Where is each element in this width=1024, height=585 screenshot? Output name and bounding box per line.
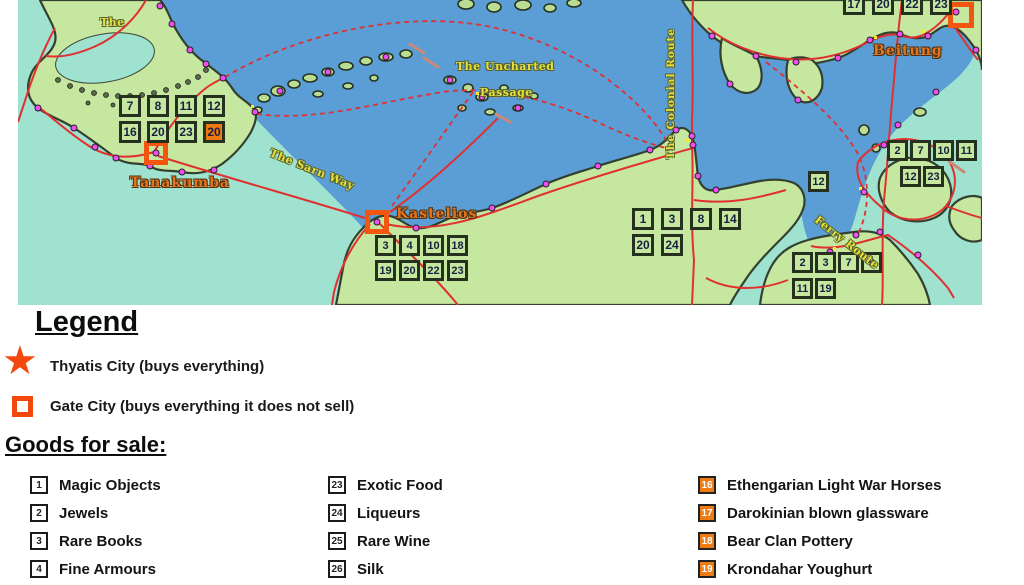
- goods-label: Fine Armours: [59, 561, 156, 578]
- goods-number-box: 24: [328, 504, 346, 522]
- goods-label: Rare Wine: [357, 533, 430, 550]
- map-goods-box-central: 8: [690, 208, 712, 230]
- map-goods-box-central: 14: [719, 208, 741, 230]
- map-goods-box-east: 11: [956, 140, 977, 161]
- goods-list-item: 16Ethengarian Light War Horses: [698, 471, 941, 499]
- map-goods-box-tanakumba: 8: [147, 95, 169, 117]
- goods-for-sale-title: Goods for sale:: [5, 432, 166, 458]
- goods-label: Bear Clan Pottery: [727, 533, 853, 550]
- map-goods-box-central: 1: [632, 208, 654, 230]
- goods-label: Krondahar Youghurt: [727, 561, 872, 578]
- map-overlays: 7811121620232034101819202223138142024172…: [18, 0, 982, 305]
- goods-list-item: 26Silk: [328, 555, 443, 583]
- route-label-uncharted-1: The Uncharted: [456, 60, 555, 73]
- map-goods-box-tanakumba: 7: [119, 95, 141, 117]
- map-goods-box-tanakumba: 20: [147, 121, 169, 143]
- map-goods-box-southeast: 2: [792, 252, 813, 273]
- goods-label: Darokinian blown glassware: [727, 505, 929, 522]
- goods-column-3: 16Ethengarian Light War Horses17Darokini…: [698, 471, 941, 583]
- map-goods-box-southeast: 19: [815, 278, 836, 299]
- city-label-beitung: Beitung: [873, 43, 943, 59]
- goods-list-item: 18Bear Clan Pottery: [698, 527, 941, 555]
- map-goods-box-beitung: 20: [872, 0, 894, 15]
- map-goods-box-kastelios: 22: [423, 260, 444, 281]
- goods-list-item: 2Jewels: [30, 499, 161, 527]
- map-goods-box-strait: 12: [808, 171, 829, 192]
- gate-square-tanakumba: [144, 141, 168, 165]
- goods-label: Liqueurs: [357, 505, 420, 522]
- legend-item-thyatis: Thyatis City (buys everything): [50, 352, 264, 380]
- goods-label: Exotic Food: [357, 477, 443, 494]
- map-goods-box-east: 10: [933, 140, 954, 161]
- route-label-colonial: The Colonial Route: [665, 28, 677, 159]
- goods-number-box: 26: [328, 560, 346, 578]
- goods-number-box: 18: [698, 532, 716, 550]
- map-goods-box-beitung: 23: [930, 0, 952, 15]
- goods-number-box: 16: [698, 476, 716, 494]
- route-label-sarn-way: The Sarn Way: [268, 146, 357, 192]
- goods-number-box: 25: [328, 532, 346, 550]
- goods-number-box: 19: [698, 560, 716, 578]
- goods-list-item: 24Liqueurs: [328, 499, 443, 527]
- goods-label: Silk: [357, 561, 384, 578]
- goods-label: Rare Books: [59, 533, 142, 550]
- goods-number-box: 1: [30, 476, 48, 494]
- goods-list-item: 19Krondahar Youghurt: [698, 555, 941, 583]
- goods-list-item: 4Fine Armours: [30, 555, 161, 583]
- goods-list-item: 17Darokinian blown glassware: [698, 499, 941, 527]
- map-goods-box-east: 2: [887, 140, 908, 161]
- city-label-tanakumba: Tanakumba: [130, 175, 230, 191]
- legend-item-label: Thyatis City (buys everything): [50, 358, 264, 375]
- gate-square-icon: [12, 396, 33, 417]
- map-goods-box-beitung: 17: [843, 0, 865, 15]
- map-goods-box-east: 23: [923, 166, 944, 187]
- map-goods-box-central: 24: [661, 234, 683, 256]
- legend-title: Legend: [35, 306, 138, 339]
- goods-list-item: 3Rare Books: [30, 527, 161, 555]
- map-goods-box-kastelios: 19: [375, 260, 396, 281]
- goods-number-box: 3: [30, 532, 48, 550]
- goods-label: Magic Objects: [59, 477, 161, 494]
- map-goods-box-tanakumba: 12: [203, 95, 225, 117]
- trade-map: 7811121620232034101819202223138142024172…: [18, 0, 982, 305]
- map-goods-box-east: 7: [910, 140, 931, 161]
- map-goods-box-kastelios: 18: [447, 235, 468, 256]
- map-goods-box-kastelios: 23: [447, 260, 468, 281]
- city-label-kastelios: Kastelios: [396, 206, 477, 222]
- map-goods-box-southeast: 11: [792, 278, 813, 299]
- goods-label: Ethengarian Light War Horses: [727, 477, 941, 494]
- map-goods-box-beitung: 22: [901, 0, 923, 15]
- map-goods-box-east: 12: [900, 166, 921, 187]
- map-goods-box-kastelios: 4: [399, 235, 420, 256]
- map-goods-box-tanakumba: 23: [175, 121, 197, 143]
- map-goods-box-kastelios: 20: [399, 260, 420, 281]
- gate-square-kastelios: [365, 210, 389, 234]
- map-goods-box-kastelios: 10: [423, 235, 444, 256]
- goods-label: Jewels: [59, 505, 108, 522]
- goods-list-item: 25Rare Wine: [328, 527, 443, 555]
- map-goods-box-central: 3: [661, 208, 683, 230]
- thyatis-star-icon: ★: [2, 341, 38, 381]
- goods-list-item: 23Exotic Food: [328, 471, 443, 499]
- goods-list-item: 1Magic Objects: [30, 471, 161, 499]
- trade-map-page: 7811121620232034101819202223138142024172…: [0, 0, 1024, 585]
- goods-number-box: 23: [328, 476, 346, 494]
- goods-number-box: 17: [698, 504, 716, 522]
- map-goods-box-central: 20: [632, 234, 654, 256]
- map-goods-box-southeast: 3: [815, 252, 836, 273]
- goods-column-1: 1Magic Objects2Jewels3Rare Books4Fine Ar…: [30, 471, 161, 583]
- goods-number-box: 2: [30, 504, 48, 522]
- route-label-uncharted-2: Passage: [480, 86, 533, 99]
- map-goods-box-tanakumba: 16: [119, 121, 141, 143]
- map-goods-box-kastelios: 3: [375, 235, 396, 256]
- goods-column-2: 23Exotic Food24Liqueurs25Rare Wine26Silk: [328, 471, 443, 583]
- route-label-nw-partial: The: [100, 16, 125, 29]
- map-goods-box-tanakumba: 11: [175, 95, 197, 117]
- legend-item-label: Gate City (buys everything it does not s…: [50, 398, 354, 415]
- legend-item-gate: Gate City (buys everything it does not s…: [50, 392, 354, 420]
- goods-number-box: 4: [30, 560, 48, 578]
- map-goods-box-tanakumba: 20: [203, 121, 225, 143]
